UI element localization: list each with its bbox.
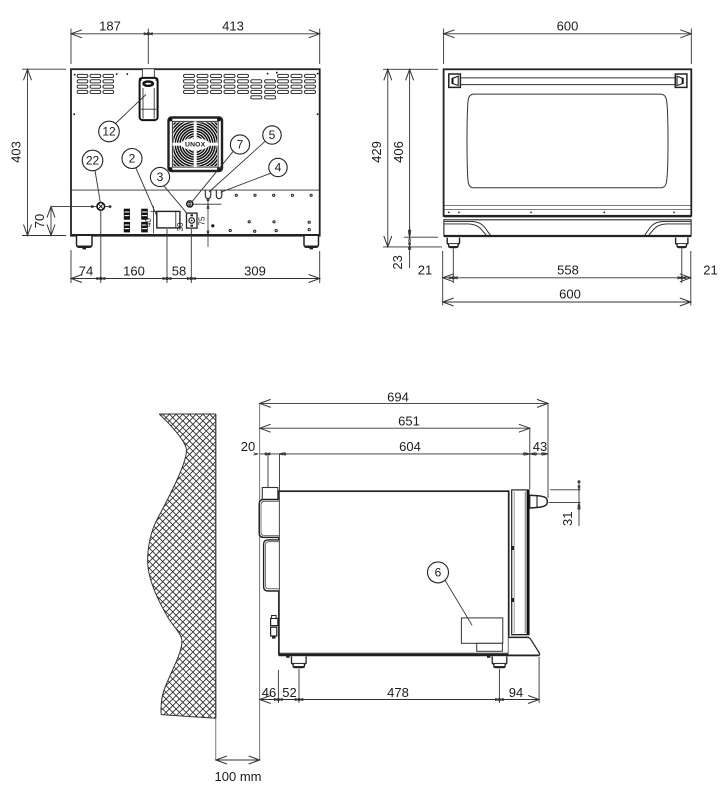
svg-text:4: 4 [275, 161, 282, 175]
svg-text:UNOX: UNOX [185, 142, 206, 149]
svg-text:558: 558 [557, 263, 579, 278]
svg-text:22: 22 [86, 154, 100, 168]
svg-text:600: 600 [557, 19, 579, 34]
svg-text:70: 70 [32, 214, 47, 228]
svg-text:406: 406 [391, 141, 406, 163]
svg-text:52: 52 [282, 685, 296, 700]
svg-text:6: 6 [435, 566, 442, 580]
svg-text:58: 58 [172, 264, 186, 279]
svg-text:21: 21 [703, 263, 717, 278]
svg-text:187: 187 [99, 19, 121, 34]
svg-text:12: 12 [102, 125, 116, 139]
svg-text:604: 604 [399, 439, 421, 454]
svg-text:40: 40 [144, 218, 153, 227]
svg-text:74: 74 [79, 264, 93, 279]
svg-text:43: 43 [533, 439, 547, 454]
svg-text:5: 5 [269, 128, 276, 142]
svg-text:94: 94 [509, 685, 523, 700]
svg-text:21: 21 [418, 263, 432, 278]
svg-text:478: 478 [387, 685, 409, 700]
svg-text:75: 75 [198, 216, 207, 225]
svg-text:160: 160 [123, 264, 145, 279]
svg-text:3: 3 [157, 170, 164, 184]
svg-text:429: 429 [369, 141, 384, 163]
svg-text:23: 23 [390, 255, 405, 269]
svg-text:694: 694 [387, 389, 409, 404]
svg-text:651: 651 [398, 414, 420, 429]
svg-text:309: 309 [244, 264, 266, 279]
svg-text:30: 30 [176, 222, 185, 231]
svg-text:403: 403 [9, 141, 24, 163]
svg-text:600: 600 [559, 287, 581, 302]
svg-text:100 mm: 100 mm [215, 769, 262, 784]
svg-text:20: 20 [241, 439, 255, 454]
svg-text:31: 31 [560, 512, 575, 526]
svg-text:2: 2 [129, 152, 136, 166]
svg-text:7: 7 [237, 138, 244, 152]
svg-text:46: 46 [262, 685, 276, 700]
svg-text:413: 413 [222, 19, 244, 34]
